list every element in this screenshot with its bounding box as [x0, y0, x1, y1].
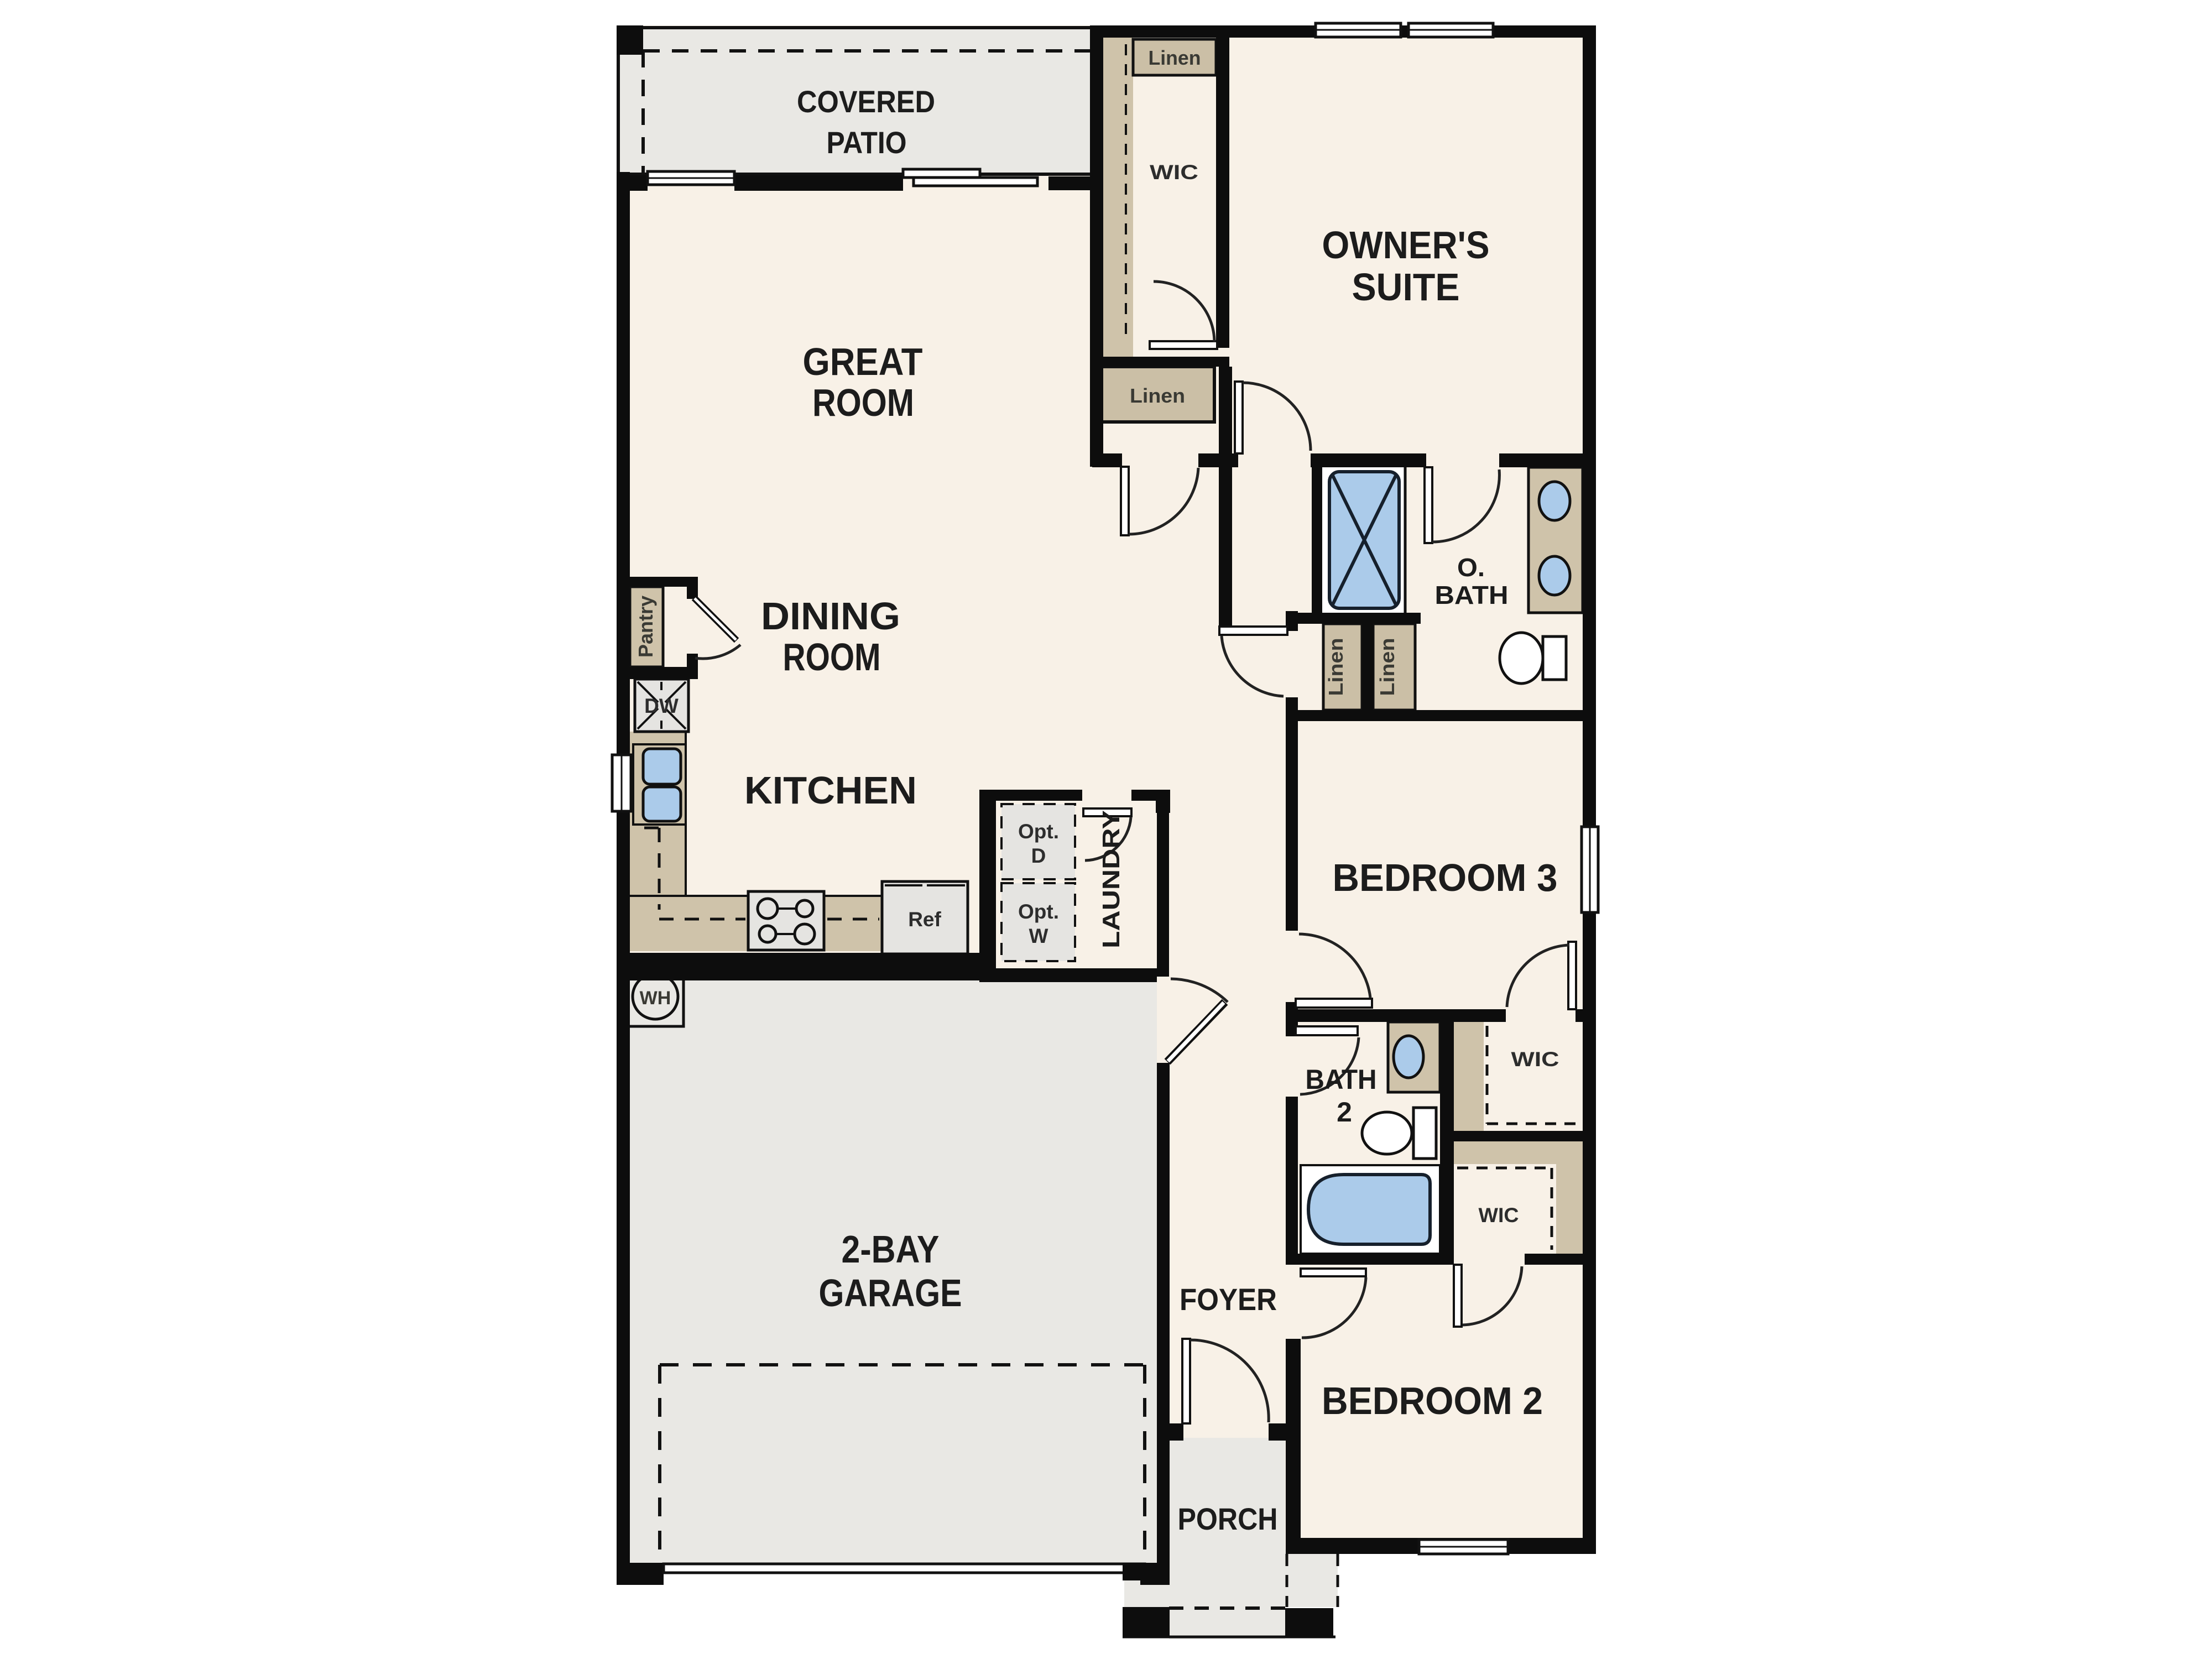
svg-text:2-BAY: 2-BAY: [842, 1228, 940, 1271]
svg-text:BATH: BATH: [1306, 1064, 1377, 1095]
svg-text:GARAGE: GARAGE: [819, 1271, 962, 1314]
svg-text:Linen: Linen: [1130, 384, 1185, 407]
svg-text:DINING: DINING: [761, 594, 900, 638]
svg-text:Linen: Linen: [1324, 638, 1347, 696]
svg-text:PORCH: PORCH: [1178, 1501, 1278, 1536]
svg-text:Opt.: Opt.: [1018, 900, 1059, 923]
svg-text:ROOM: ROOM: [812, 381, 914, 424]
svg-text:WIC: WIC: [1511, 1048, 1559, 1071]
svg-text:FOYER: FOYER: [1180, 1282, 1277, 1317]
svg-text:KITCHEN: KITCHEN: [744, 769, 917, 812]
svg-text:GREAT: GREAT: [803, 340, 923, 383]
svg-text:DW: DW: [644, 695, 679, 717]
svg-text:Linen: Linen: [1376, 638, 1399, 696]
svg-text:COVERED: COVERED: [797, 84, 935, 119]
svg-text:WIC: WIC: [1479, 1204, 1519, 1227]
svg-text:ROOM: ROOM: [783, 635, 881, 679]
svg-text:D: D: [1031, 844, 1046, 867]
svg-text:LAUNDRY: LAUNDRY: [1098, 810, 1125, 948]
svg-text:Opt.: Opt.: [1018, 820, 1059, 843]
svg-text:WIC: WIC: [1150, 161, 1198, 184]
svg-text:2: 2: [1337, 1097, 1352, 1128]
svg-text:OWNER'S: OWNER'S: [1322, 223, 1490, 267]
svg-text:BEDROOM 3: BEDROOM 3: [1333, 856, 1558, 899]
svg-text:O.: O.: [1457, 553, 1485, 582]
svg-text:PATIO: PATIO: [827, 125, 907, 160]
svg-text:W: W: [1029, 925, 1048, 947]
svg-text:BATH: BATH: [1435, 581, 1509, 609]
svg-text:WH: WH: [640, 988, 671, 1009]
svg-text:Pantry: Pantry: [634, 596, 657, 658]
svg-text:Linen: Linen: [1149, 46, 1201, 69]
svg-text:SUITE: SUITE: [1352, 265, 1460, 309]
svg-text:Ref: Ref: [908, 908, 941, 931]
svg-text:BEDROOM 2: BEDROOM 2: [1322, 1379, 1543, 1422]
